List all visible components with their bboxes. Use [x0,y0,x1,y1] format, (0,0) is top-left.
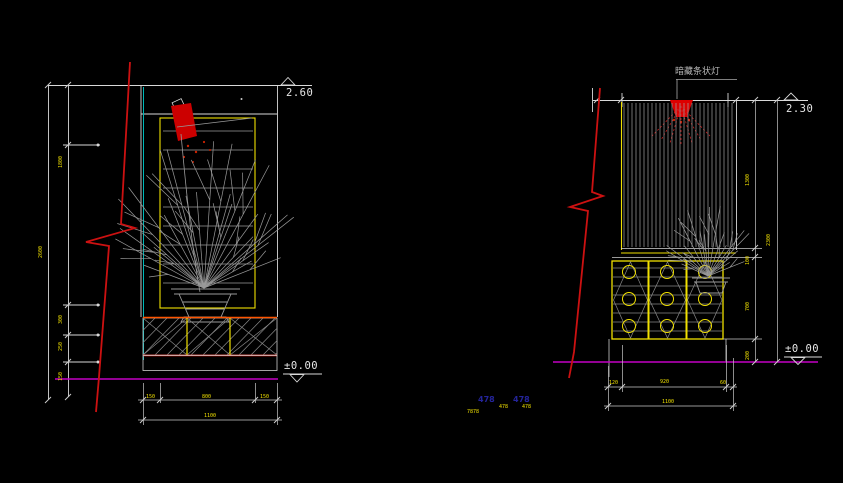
right-downlight-symbol [652,100,710,144]
sheet-number: 7878 [467,409,479,415]
dim-text: 700 [745,302,751,311]
sheet-ref-label: 478 [513,395,530,404]
dim-text: 800 [202,394,211,400]
dim-text: 1100 [662,399,674,405]
slat-wall [612,100,737,258]
dim-text: 1100 [204,413,216,419]
dim-text: 150 [146,394,155,400]
right-elevation [553,80,822,412]
left-floor-level-symbol [283,374,322,382]
floor-level-text-left: ±0.00 [284,360,318,372]
right-floor-level-symbol [784,357,822,365]
dim-text: 1300 [745,174,751,186]
left-plant [115,134,293,322]
left-elevation [45,78,322,426]
dim-text: 150 [58,372,64,381]
dim-text: 200 [745,351,751,360]
level-text-230: 2.30 [786,103,813,115]
dim-text: 2300 [766,234,772,246]
sheet-ref-label: 478 [478,395,495,404]
break-line-right [569,88,603,378]
right-vdims [723,100,778,362]
hidden-strip-light-label: 暗藏条状灯 [675,64,720,77]
dim-text: 1800 [58,156,64,168]
sheet-number: 478 [499,404,508,410]
level-text-260: 2.60 [286,87,313,99]
dim-text: 150 [260,394,269,400]
level-triangle-230 [784,93,798,100]
sheet-number: 478 [522,404,531,410]
dim-text: 920 [660,379,669,385]
dim-text: 120 [609,380,618,386]
dim-text: 60 [720,380,726,386]
dim-text: 2600 [38,246,44,258]
level-triangle-260 [281,78,295,86]
point-marker [241,98,243,100]
right-vase [692,278,730,293]
dim-text: 250 [58,342,64,351]
left-base-hatch [118,317,312,371]
dim-text: 100 [745,256,751,265]
cad-canvas[interactable]: 2.60 ±0.00 2.30 ±0.00 暗藏条状灯 2600 1800 30… [0,0,843,483]
break-line-left [86,62,135,412]
floor-level-text-right: ±0.00 [785,343,819,355]
dim-text: 300 [58,315,64,324]
